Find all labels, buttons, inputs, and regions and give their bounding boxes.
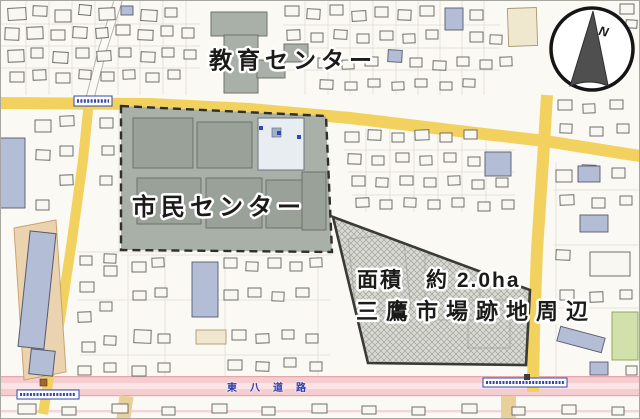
building (62, 407, 76, 415)
building (33, 70, 46, 80)
building (162, 48, 174, 57)
building (612, 312, 638, 360)
building (375, 7, 388, 17)
building (116, 25, 130, 35)
building (55, 10, 71, 22)
building (56, 73, 70, 83)
building (334, 30, 347, 40)
map-canvas: 教育センター 市民センター 面積 約 2.0ha 三鷹市場跡地周辺 東八道路 N (0, 0, 640, 419)
building (345, 82, 357, 90)
building (368, 79, 380, 87)
building (53, 52, 69, 64)
building (146, 73, 159, 82)
building (60, 146, 73, 156)
building (403, 34, 415, 43)
building (73, 27, 88, 39)
building (376, 178, 388, 187)
building (330, 5, 343, 15)
building (472, 180, 484, 189)
building (104, 363, 116, 372)
road-sign-label (17, 390, 79, 399)
building (440, 82, 452, 90)
building (558, 100, 572, 110)
building (100, 176, 112, 185)
building (82, 342, 95, 352)
building (284, 358, 296, 367)
building (80, 282, 94, 292)
building (60, 116, 74, 126)
building (36, 200, 49, 210)
building (134, 330, 151, 344)
building (445, 8, 463, 30)
building (578, 166, 600, 182)
building (256, 334, 269, 343)
building (123, 70, 135, 79)
building (306, 334, 318, 343)
building (141, 10, 158, 22)
building (60, 175, 73, 185)
building (104, 266, 117, 276)
building (590, 362, 608, 375)
building (462, 404, 477, 413)
building (18, 404, 36, 414)
building (162, 407, 175, 415)
building (400, 176, 413, 185)
building (320, 80, 333, 89)
building (444, 153, 456, 162)
building (182, 28, 194, 38)
building (415, 79, 427, 87)
building (99, 8, 115, 21)
site-name-label: 三鷹市場跡地周辺 (356, 299, 596, 324)
building (580, 215, 608, 232)
building (620, 4, 634, 14)
building (158, 363, 170, 372)
building (97, 51, 112, 62)
building (412, 407, 425, 415)
building (311, 33, 323, 42)
building (620, 290, 632, 299)
building (268, 258, 281, 268)
compass: N (551, 8, 633, 90)
building (440, 133, 452, 142)
building (617, 124, 629, 133)
building (133, 291, 146, 300)
building (610, 100, 623, 109)
building (78, 312, 91, 322)
building (307, 9, 321, 20)
building (457, 57, 469, 66)
building (480, 60, 492, 69)
building (310, 362, 322, 371)
tohachi-road-label: 東八道路 (227, 381, 319, 394)
building (184, 50, 196, 59)
building (262, 407, 275, 415)
building (8, 50, 24, 63)
building (426, 30, 438, 39)
building (51, 30, 65, 40)
building (101, 72, 114, 81)
building (165, 8, 177, 17)
building (556, 250, 570, 260)
building (590, 252, 630, 276)
building (404, 198, 416, 207)
building (100, 118, 113, 128)
building (500, 57, 512, 66)
building (420, 6, 434, 16)
building (626, 366, 637, 375)
traffic-signal-icon (40, 379, 47, 386)
building (312, 404, 327, 413)
building (620, 196, 632, 205)
building (102, 146, 114, 155)
building (224, 258, 237, 268)
building (0, 138, 25, 208)
building (348, 154, 361, 164)
civic-center-block (121, 106, 332, 252)
site-area-label: 面積 約 2.0ha (357, 268, 521, 292)
building (368, 130, 381, 140)
traffic-signal-icon (524, 374, 530, 380)
building (119, 48, 131, 57)
building (80, 256, 92, 265)
building (121, 6, 133, 15)
building (592, 198, 605, 208)
building (345, 132, 359, 142)
building (490, 35, 502, 44)
building (380, 31, 393, 40)
building (556, 170, 572, 182)
building (424, 178, 436, 187)
building (452, 198, 464, 207)
building (256, 362, 269, 371)
building (428, 200, 440, 209)
building (196, 330, 226, 344)
building (470, 10, 483, 20)
building (285, 6, 299, 16)
building (372, 156, 384, 165)
building (152, 258, 164, 267)
building (8, 8, 27, 21)
building (352, 11, 367, 22)
building (448, 176, 460, 185)
building (5, 28, 19, 40)
building (485, 152, 511, 176)
building (560, 195, 574, 205)
building (560, 124, 572, 133)
building (272, 292, 284, 301)
building (10, 72, 24, 82)
road-sign-label (74, 96, 112, 106)
building (100, 302, 112, 311)
building (468, 157, 480, 166)
building (138, 30, 153, 41)
building (78, 366, 91, 375)
building (224, 290, 238, 300)
building (590, 127, 603, 136)
building (290, 262, 302, 271)
building (433, 61, 446, 70)
building (104, 254, 116, 263)
building (410, 58, 422, 67)
building (496, 178, 508, 187)
map-page: 教育センター 市民センター 面積 約 2.0ha 三鷹市場跡地周辺 東八道路 N (0, 0, 640, 419)
building (396, 153, 409, 162)
building (132, 366, 146, 376)
education-center-label: 教育センター (209, 47, 377, 73)
building (27, 27, 43, 40)
building (583, 104, 595, 113)
building (612, 168, 625, 178)
building (161, 26, 173, 36)
building (248, 288, 261, 297)
building (96, 28, 109, 39)
building (357, 34, 369, 43)
building (132, 262, 146, 272)
building (35, 120, 51, 132)
building (380, 200, 392, 209)
building (463, 79, 475, 87)
building (470, 32, 483, 42)
building (392, 82, 404, 90)
building (168, 70, 180, 79)
building (192, 262, 218, 317)
building (507, 8, 537, 47)
building (287, 30, 300, 40)
building (362, 406, 376, 414)
building (398, 10, 411, 20)
building (562, 405, 576, 414)
building (478, 202, 490, 211)
building (420, 156, 432, 165)
building (228, 360, 242, 370)
civic-center-label: 市民センター (132, 193, 306, 221)
building (112, 404, 128, 413)
building (392, 133, 404, 142)
building (79, 70, 91, 80)
building (352, 176, 365, 186)
building (76, 48, 89, 58)
building (36, 150, 50, 160)
building (310, 258, 322, 267)
building (141, 52, 155, 62)
building (232, 330, 246, 340)
building (612, 407, 624, 415)
building (104, 336, 116, 345)
building (212, 404, 227, 413)
building (296, 288, 309, 297)
building (33, 6, 47, 16)
building (155, 288, 167, 297)
hall-building (258, 118, 304, 170)
building (158, 334, 170, 343)
building (388, 50, 403, 63)
building (415, 130, 429, 140)
building (31, 48, 43, 58)
building (246, 262, 258, 271)
building (512, 407, 525, 415)
building (79, 4, 92, 15)
building (464, 130, 477, 139)
building (502, 200, 514, 209)
building (356, 198, 369, 207)
building (282, 330, 294, 339)
